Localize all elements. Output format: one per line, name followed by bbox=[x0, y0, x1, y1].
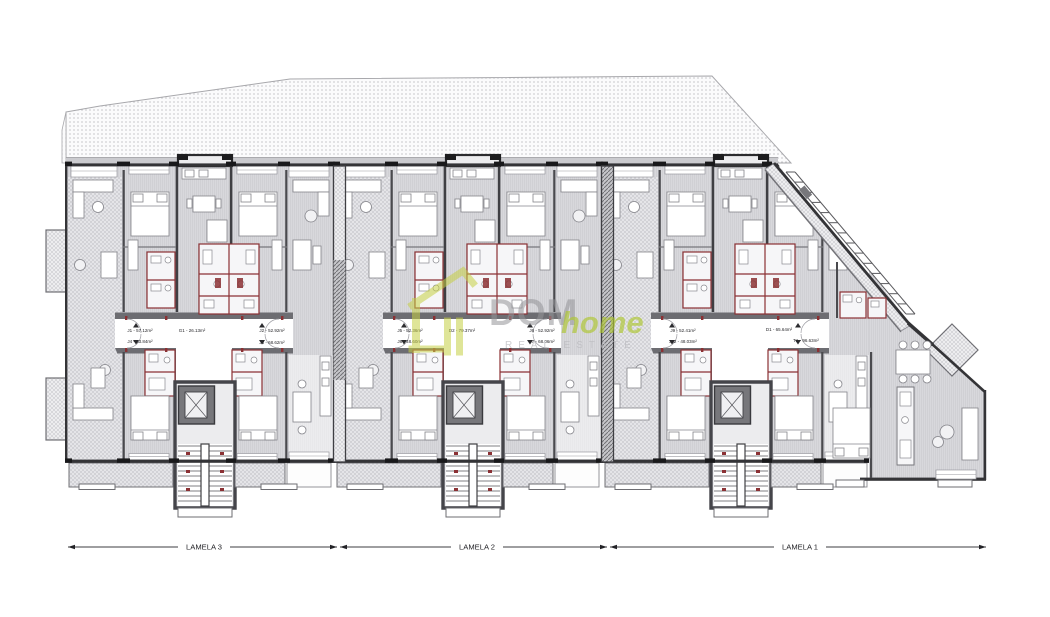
svg-text:LAMELA 2: LAMELA 2 bbox=[459, 543, 495, 552]
svg-text:J4 - 53.84m²: J4 - 53.84m² bbox=[127, 339, 153, 344]
svg-text:LAMELA 3: LAMELA 3 bbox=[186, 543, 222, 552]
svg-text:G1 - 26.13m²: G1 - 26.13m² bbox=[179, 328, 206, 333]
svg-text:J9 - 52.41m²: J9 - 52.41m² bbox=[670, 328, 696, 333]
svg-text:J12 - 48.03m²: J12 - 48.03m² bbox=[669, 339, 697, 344]
svg-text:J3 - 68.62m²: J3 - 68.62m² bbox=[259, 340, 285, 345]
svg-text:D1 - 65.64m²: D1 - 65.64m² bbox=[766, 327, 793, 332]
svg-text:home: home bbox=[561, 305, 644, 340]
svg-text:REAL ESTATE: REAL ESTATE bbox=[505, 340, 637, 351]
svg-text:J2 - 52.92m²: J2 - 52.92m² bbox=[259, 328, 285, 333]
svg-text:LAMELA 1: LAMELA 1 bbox=[782, 543, 818, 552]
svg-text:T1 - 96.63m²: T1 - 96.63m² bbox=[793, 338, 819, 343]
svg-text:J1 - 57.12m²: J1 - 57.12m² bbox=[127, 328, 153, 333]
